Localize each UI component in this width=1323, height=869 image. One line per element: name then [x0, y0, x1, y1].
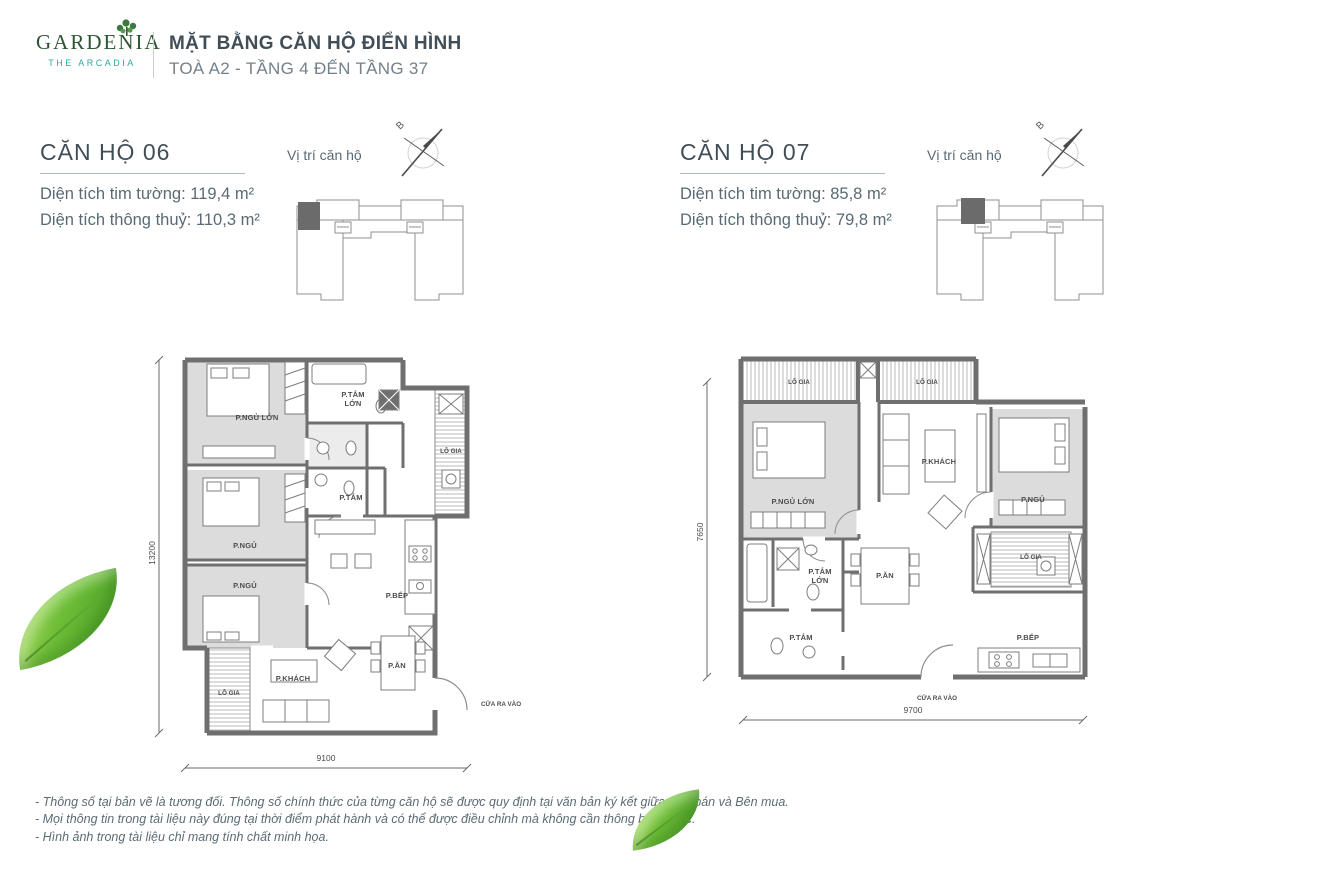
- unit06-location-map: [283, 172, 475, 304]
- room-label: P.TẮM: [789, 633, 812, 642]
- compass-north-label: B: [1034, 119, 1047, 132]
- unit06-floorplan: P.NGỦ LỚN P.TẮM LỚN LÔ GIA P.NGỦ P.TẮM P…: [145, 348, 540, 788]
- room-label: LÔ GIA: [916, 377, 938, 386]
- room-label: P.NGỦ: [1021, 495, 1045, 504]
- room-label: P.TẮM: [808, 567, 831, 576]
- room-label: P.NGỦ: [233, 581, 257, 590]
- room-label: P.ĂN: [388, 661, 406, 670]
- dim-height: 7650: [695, 522, 705, 541]
- room-label: P.NGỦ LỚN: [771, 497, 814, 506]
- room-label: LÔ GIA: [218, 688, 240, 697]
- room-label: LÔ GIA: [1020, 552, 1042, 561]
- unit07-title: CĂN HỘ 07: [680, 139, 810, 166]
- room-label: LỚN: [345, 399, 362, 408]
- leaf-decoration: [6, 568, 131, 670]
- dim-height: 13200: [147, 541, 157, 565]
- brochure-page: { "header": { "logo_name": "GARDENIA", "…: [0, 0, 1323, 869]
- room-label: P.BẾP: [386, 590, 409, 600]
- compass-north-label: B: [394, 119, 407, 132]
- unit06-underline: [40, 173, 245, 174]
- unit07-area-net: Diện tích thông thuỷ: 79,8 m²: [680, 211, 892, 230]
- room-label: P.KHÁCH: [276, 674, 311, 683]
- dim-width: 9100: [317, 753, 336, 763]
- room-label: LỚN: [812, 576, 829, 585]
- room-label: P.TẮM: [339, 493, 362, 502]
- unit06-highlight: [298, 202, 320, 230]
- unit06-area-net: Diện tích thông thuỷ: 110,3 m²: [40, 211, 260, 230]
- unit07-floorplan: LÔ GIA LÔ GIA P.NGỦ LỚN P.KHÁCH P.NGỦ P.…: [693, 352, 1193, 747]
- room-label: LÔ GIA: [788, 377, 810, 386]
- entrance-label: CỬA RA VÀO: [481, 699, 521, 708]
- room-label: P.ĂN: [876, 571, 894, 580]
- page-title: MẶT BẰNG CĂN HỘ ĐIỂN HÌNH: [169, 33, 462, 55]
- unit07-location-caption: Vị trí căn hộ: [927, 147, 1002, 163]
- unit07-location-map: [923, 172, 1115, 304]
- header-divider: [153, 32, 154, 78]
- unit07-underline: [680, 173, 885, 174]
- page-subtitle: TOÀ A2 - TẦNG 4 ĐẾN TẦNG 37: [169, 59, 462, 79]
- unit07-highlight: [961, 198, 985, 224]
- brand-logo: GARDENIA THE ARCADIA: [36, 30, 148, 68]
- room-label: P.NGỦ: [233, 541, 257, 550]
- dim-width: 9700: [904, 705, 923, 715]
- room-label: P.TẮM: [341, 390, 364, 399]
- room-label: P.NGỦ LỚN: [235, 413, 278, 422]
- brand-logo-tagline: THE ARCADIA: [36, 58, 148, 68]
- unit07-area-gross: Diện tích tim tường: 85,8 m²: [680, 185, 886, 204]
- room-label: LÔ GIA: [440, 446, 462, 455]
- room-label: P.BẾP: [1017, 632, 1040, 642]
- unit06-title: CĂN HỘ 06: [40, 139, 170, 166]
- entrance-label: CỬA RA VÀO: [917, 693, 957, 702]
- tree-icon: [114, 18, 140, 36]
- unit06-location-caption: Vị trí căn hộ: [287, 147, 362, 163]
- unit06-area-gross: Diện tích tim tường: 119,4 m²: [40, 185, 254, 204]
- room-label: P.KHÁCH: [922, 457, 957, 466]
